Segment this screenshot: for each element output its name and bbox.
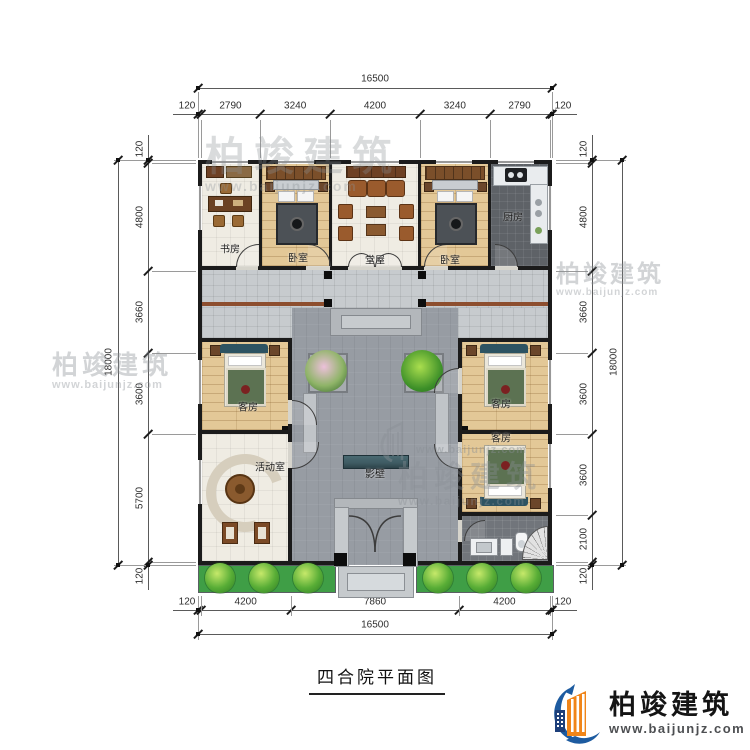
stove [505, 168, 527, 182]
window [548, 186, 552, 230]
blanket [486, 448, 526, 486]
dim-extension [198, 92, 199, 158]
dim-label: 3600 [579, 382, 590, 404]
window [498, 160, 534, 164]
chair [213, 215, 225, 227]
dim-line [198, 88, 552, 89]
armchair [254, 522, 270, 544]
nightstand [530, 345, 541, 356]
dim-extension [114, 565, 196, 566]
headboard [480, 344, 528, 353]
veranda-rail [202, 302, 330, 306]
sofa-chair [367, 180, 386, 197]
window [548, 360, 552, 404]
dim-line [173, 610, 577, 611]
wall [518, 266, 548, 270]
pillow [278, 191, 295, 202]
round-table [225, 474, 255, 504]
dim-line [148, 135, 149, 590]
cushion [501, 385, 510, 394]
dim-line [118, 160, 119, 565]
dim-label: 120 [135, 568, 146, 585]
entry-steps [330, 308, 422, 336]
blanket [276, 203, 318, 245]
dim-line [198, 634, 552, 635]
burner [517, 172, 523, 178]
dim-label: 120 [135, 141, 146, 158]
dim-extension [556, 163, 588, 164]
dim-extension [291, 596, 292, 616]
dim-label: 120 [179, 101, 196, 112]
sofa-chair [348, 180, 367, 197]
wall [288, 468, 292, 561]
dim-label: 120 [579, 141, 590, 158]
chair [232, 215, 244, 227]
dim-label: 120 [179, 597, 196, 608]
pillow [437, 191, 454, 202]
dim-extension [152, 271, 196, 272]
dim-dot [590, 158, 594, 162]
room-label-guest-right-top: 客房 [491, 396, 511, 411]
washing-machine [470, 538, 498, 556]
veranda-left [202, 308, 292, 338]
window [436, 160, 472, 164]
dim-dot [550, 86, 554, 90]
dim-extension [114, 160, 196, 161]
dim-dot [620, 158, 624, 162]
cabinet [500, 538, 513, 556]
dim-label: 4200 [493, 597, 515, 608]
dim-label: 3660 [579, 301, 590, 323]
wall [418, 164, 421, 266]
bush [423, 563, 453, 593]
chair-strap [258, 527, 266, 539]
side-chair [338, 204, 353, 219]
headboard [432, 180, 478, 190]
dim-dot [550, 608, 554, 612]
room-label-activity: 活动室 [255, 459, 285, 474]
dim-extension [260, 120, 261, 158]
side-chair [399, 226, 414, 241]
desk-papers [233, 200, 243, 206]
bush [467, 563, 497, 593]
armchair [222, 522, 238, 544]
dim-extension [556, 434, 588, 435]
dim-total-label: 18000 [609, 348, 620, 376]
nightstand [269, 345, 280, 356]
washer-door [476, 542, 492, 553]
dim-label: 4800 [135, 206, 146, 228]
gate-stoop-inner [347, 573, 405, 591]
nightstand [318, 182, 328, 192]
dim-dot [196, 632, 200, 636]
wall [458, 512, 548, 516]
side-chair [399, 204, 414, 219]
dim-label: 2100 [579, 528, 590, 550]
dim-label: 2790 [508, 101, 530, 112]
dim-total-label: 16500 [361, 620, 389, 631]
room-label-bedroom-right: 卧室 [440, 252, 460, 267]
dim-dot [196, 86, 200, 90]
brand-name: 柏竣建筑 [609, 692, 745, 719]
bush [249, 563, 279, 593]
room-label-guest-left: 客房 [238, 399, 258, 414]
dim-label: 4200 [364, 101, 386, 112]
wall [458, 394, 462, 442]
cabinet [206, 166, 224, 178]
column [324, 271, 332, 279]
pillow [456, 191, 473, 202]
dim-extension [556, 515, 588, 516]
wall [288, 342, 292, 400]
cabinet [346, 166, 406, 178]
dim-extension [556, 562, 588, 563]
column [418, 299, 426, 307]
dim-extension [152, 434, 196, 435]
gate-pier [334, 553, 347, 566]
dim-total-label: 16500 [361, 74, 389, 85]
entrance-gate [334, 498, 416, 596]
column [418, 271, 426, 279]
bush [205, 563, 235, 593]
dim-extension [556, 353, 588, 354]
wall [202, 338, 292, 342]
gate-pier [403, 553, 416, 566]
dim-label: 3600 [579, 463, 590, 485]
window [548, 444, 552, 488]
dim-extension [152, 163, 196, 164]
wall [458, 338, 548, 342]
nightstand [530, 498, 541, 509]
burner [508, 172, 514, 178]
chair-strap [226, 527, 234, 539]
dim-label: 120 [555, 597, 572, 608]
bed [432, 180, 476, 244]
dim-dot [196, 112, 200, 116]
wardrobe [266, 166, 326, 180]
window [198, 186, 202, 230]
architectural-drawing-page: { "title": "四合院平面图", "brand": { "name": … [0, 0, 750, 750]
wall [259, 164, 262, 266]
dim-total-label: 18000 [104, 348, 115, 376]
dim-dot [146, 563, 150, 567]
plant-pot [535, 227, 542, 234]
nightstand [466, 498, 477, 509]
wall [258, 266, 306, 270]
wall [202, 430, 292, 434]
dim-dot [116, 158, 120, 162]
headboard [220, 344, 268, 353]
dim-extension [556, 271, 588, 272]
bookshelf [226, 166, 252, 178]
window [198, 460, 202, 504]
window [212, 160, 248, 164]
brand-text-block: 柏竣建筑 www.baijunjz.com [609, 692, 745, 736]
dim-extension [459, 596, 460, 616]
desk [208, 196, 252, 212]
blossom-tree [305, 350, 347, 392]
wall [458, 542, 462, 561]
dim-label: 4200 [235, 597, 257, 608]
bush [511, 563, 541, 593]
gate-doors [347, 508, 403, 554]
dim-label: 120 [579, 568, 590, 585]
gate-stoop [338, 566, 414, 598]
door-opening [458, 520, 462, 542]
window [198, 360, 202, 404]
pillow [488, 486, 522, 496]
room-label-bedroom-left: 卧室 [288, 250, 308, 265]
room-label-study: 书房 [220, 241, 240, 256]
wall [329, 164, 332, 266]
column [324, 299, 332, 307]
dim-label: 3240 [284, 101, 306, 112]
dim-extension [201, 596, 202, 616]
pillow [228, 356, 262, 366]
wall [488, 164, 491, 266]
chair [220, 183, 232, 194]
cushion [241, 385, 250, 394]
nightstand [466, 345, 477, 356]
tea-table [366, 206, 386, 218]
veranda-right [458, 308, 548, 338]
sink [535, 210, 542, 217]
veranda-rail [420, 302, 548, 306]
dim-extension [552, 92, 553, 158]
brand-logo-icon [552, 683, 604, 745]
dim-label: 120 [555, 101, 572, 112]
room-label-screen-wall: 影壁 [365, 466, 385, 481]
sink [535, 199, 542, 206]
dim-extension [550, 120, 551, 158]
dim-label: 2790 [219, 101, 241, 112]
wall [202, 266, 236, 270]
dim-label: 3600 [135, 382, 146, 404]
drawing-title: 四合院平面图 [309, 663, 445, 695]
dim-extension [201, 120, 202, 158]
bush [293, 563, 323, 593]
entry-steps-inner [341, 315, 411, 329]
pillow [297, 191, 314, 202]
room-label-hall: 堂屋 [365, 252, 385, 267]
wall [330, 266, 348, 270]
blanket-deco [449, 217, 463, 231]
dim-extension [420, 120, 421, 158]
dim-line [592, 135, 593, 590]
window [351, 160, 399, 164]
building-plan: 书房 卧室 堂屋 卧室 厨房 客房 客房 客房 活动室 影壁 [198, 160, 552, 565]
blanket [435, 203, 477, 245]
table-center [235, 484, 245, 494]
sofa-chair [386, 180, 405, 197]
dim-extension [330, 120, 331, 158]
room-label-kitchen: 厨房 [503, 209, 523, 224]
dim-label: 4800 [579, 206, 590, 228]
window [278, 160, 314, 164]
dim-label: 3660 [135, 301, 146, 323]
dim-dot [550, 112, 554, 116]
dim-extension [152, 562, 196, 563]
dim-dot [146, 158, 150, 162]
pillow [488, 356, 522, 366]
dim-label: 5700 [135, 487, 146, 509]
desk-papers [215, 200, 223, 206]
dim-extension [490, 120, 491, 158]
room-label-guest-right-bottom: 客房 [491, 430, 511, 445]
dim-label: 7860 [364, 597, 386, 608]
side-chair [338, 226, 353, 241]
wardrobe [425, 166, 485, 180]
dim-dot [196, 608, 200, 612]
dim-dot [590, 563, 594, 567]
bed [273, 180, 317, 244]
wall [458, 342, 462, 368]
dim-label: 3240 [444, 101, 466, 112]
wall [288, 424, 292, 442]
cushion [501, 461, 510, 470]
bed [480, 442, 528, 506]
kitchen-counter [530, 184, 548, 244]
dim-dot [620, 563, 624, 567]
wall [448, 266, 495, 270]
dim-line [173, 114, 577, 115]
brand-logo: 柏竣建筑 www.baijunjz.com [552, 680, 750, 748]
dim-extension [152, 353, 196, 354]
brand-website: www.baijunjz.com [609, 721, 745, 736]
dim-line [622, 160, 623, 565]
tea-table [366, 224, 386, 236]
wall [402, 266, 424, 270]
dim-dot [116, 563, 120, 567]
headboard [273, 180, 319, 190]
blanket-deco [290, 217, 304, 231]
wall [458, 468, 462, 520]
nightstand [477, 182, 487, 192]
dim-dot [550, 632, 554, 636]
